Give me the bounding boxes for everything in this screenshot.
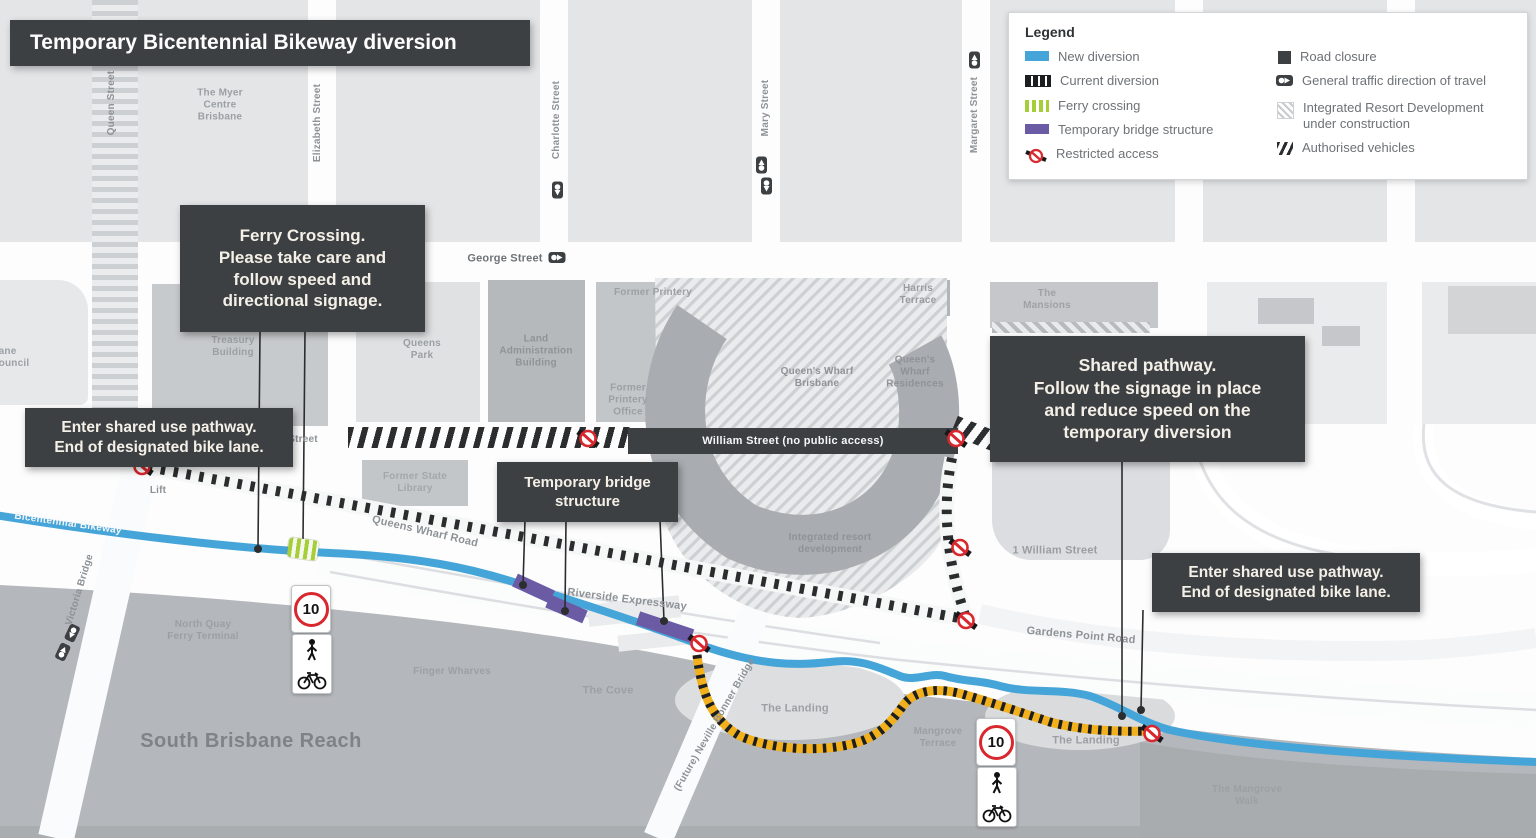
speed-limit-sign: 10	[291, 585, 331, 633]
label-charlotte-street: Charlotte Street	[551, 81, 563, 159]
label-queen-street: Queen Street	[106, 71, 118, 136]
label-lift: Lift	[150, 485, 166, 497]
callout-ferry-crossing: Ferry Crossing. Please take care and fol…	[180, 205, 425, 332]
callout-enter-shared-left: Enter shared use pathway. End of designa…	[25, 408, 293, 467]
legend-label: Current diversion	[1060, 73, 1159, 89]
legend-label: Integrated Resort Development under cons…	[1303, 100, 1484, 133]
legend-label: General traffic direction of travel	[1302, 73, 1486, 89]
label-mary-street: Mary Street	[760, 80, 772, 137]
label-the-landing-1: The Landing	[761, 703, 829, 716]
traffic-direction-icon	[546, 182, 564, 199]
label-the-mansions: The Mansions	[1023, 288, 1071, 312]
traffic-direction-icon	[755, 157, 773, 174]
legend: Legend New diversion Current diversion F…	[1008, 12, 1528, 180]
restricted-access-icon	[1140, 722, 1164, 751]
label-margaret-street: Margaret Street	[969, 77, 981, 153]
legend-item-new-diversion: New diversion	[1025, 49, 1273, 65]
legend-label: Road closure	[1300, 49, 1377, 65]
map-canvas: William Street (no public access) Queen …	[0, 0, 1536, 838]
ferry-crossing-swatch	[1025, 100, 1049, 112]
ferry-crossing-marker	[287, 537, 319, 561]
pedestrian-icon	[980, 770, 1014, 796]
temporary-bridge-swatch	[1025, 124, 1049, 134]
label-council-partial: ane ouncil	[0, 346, 29, 370]
legend-title: Legend	[1025, 24, 1511, 40]
legend-label: Ferry crossing	[1058, 98, 1140, 114]
legend-item-ird: Integrated Resort Development under cons…	[1273, 100, 1486, 133]
label-queens-park: Queens Park	[403, 338, 441, 362]
road-closure-swatch	[1278, 51, 1291, 64]
ird-hatch-swatch	[1277, 102, 1294, 119]
label-mangrove-terrace: Mangrove Terrace	[914, 726, 963, 750]
traffic-direction-icon	[1276, 75, 1293, 91]
legend-label: Restricted access	[1056, 146, 1159, 162]
legend-item-current-diversion: Current diversion	[1025, 73, 1273, 89]
legend-item-ferry-crossing: Ferry crossing	[1025, 98, 1273, 114]
traffic-direction-icon	[549, 251, 566, 269]
map-title: Temporary Bicentennial Bikeway diversion	[10, 20, 530, 66]
label-north-quay: North Quay Ferry Terminal	[167, 619, 239, 643]
label-former-state-library: Former State Library	[383, 471, 447, 495]
traffic-direction-icon	[968, 52, 986, 69]
restricted-access-icon	[687, 632, 711, 661]
restricted-access-icon	[576, 427, 600, 456]
callout-enter-shared-right: Enter shared use pathway. End of designa…	[1152, 553, 1420, 612]
label-mangrove-walk: The Mangrove Walk	[1212, 784, 1282, 808]
bicycle-icon	[295, 667, 329, 691]
traffic-direction-icon	[755, 178, 773, 195]
label-qw-residences: Queen's Wharf Residences	[886, 354, 944, 389]
label-the-cove: The Cove	[582, 685, 633, 698]
speed-limit-value: 10	[294, 592, 329, 627]
restricted-access-icon	[954, 609, 978, 638]
label-former-printery-office: Former Printery Office	[608, 382, 647, 417]
label-treasury: Treasury Building	[211, 335, 254, 359]
new-diversion-swatch	[1025, 51, 1049, 61]
legend-item-restricted-access: Restricted access	[1025, 146, 1273, 168]
label-south-brisbane-reach: South Brisbane Reach	[140, 730, 361, 754]
legend-item-general-traffic: General traffic direction of travel	[1273, 73, 1486, 91]
william-street-label: William Street (no public access)	[702, 435, 884, 448]
label-myer-centre: The Myer Centre Brisbane	[197, 87, 243, 122]
label-george-street: George Street	[467, 253, 542, 266]
speed-limit-sign: 10	[976, 718, 1016, 766]
label-land-admin: Land Administration Building	[499, 333, 572, 368]
william-street-closure-band: William Street (no public access)	[628, 428, 958, 454]
label-integrated-resort: Integrated resort development	[789, 532, 872, 556]
label-former-printery: Former Printery	[614, 287, 692, 299]
legend-item-temporary-bridge: Temporary bridge structure	[1025, 122, 1273, 138]
restricted-access-icon	[948, 536, 972, 565]
legend-item-road-closure: Road closure	[1273, 49, 1486, 65]
shared-path-sign	[977, 767, 1017, 827]
callout-shared-pathway: Shared pathway. Follow the signage in pl…	[990, 336, 1305, 462]
legend-label: New diversion	[1058, 49, 1140, 65]
label-one-william-street: 1 William Street	[1012, 545, 1097, 558]
restricted-access-icon	[1025, 148, 1047, 168]
pedestrian-icon	[295, 637, 329, 663]
ramp-road	[1423, 424, 1536, 520]
callout-temporary-bridge: Temporary bridge structure	[497, 462, 678, 522]
speed-limit-value: 10	[979, 725, 1014, 760]
shared-path-sign	[292, 634, 332, 694]
label-queens-wharf-brisbane: Queen's Wharf Brisbane	[781, 366, 854, 390]
legend-item-authorised-vehicles: Authorised vehicles	[1273, 140, 1486, 156]
bottom-shore-band	[0, 826, 1536, 838]
label-finger-wharves: Finger Wharves	[413, 666, 491, 678]
current-diversion-swatch	[1025, 75, 1051, 87]
restricted-access-icon	[944, 427, 968, 456]
label-the-landing-2: The Landing	[1052, 735, 1120, 748]
legend-label: Temporary bridge structure	[1058, 122, 1213, 138]
legend-label: Authorised vehicles	[1302, 140, 1415, 156]
label-harris-terrace: Harris Terrace	[900, 283, 937, 307]
authorised-vehicles-swatch	[1277, 142, 1293, 155]
label-elizabeth-street: Elizabeth Street	[312, 84, 324, 162]
bicycle-icon	[980, 800, 1014, 824]
